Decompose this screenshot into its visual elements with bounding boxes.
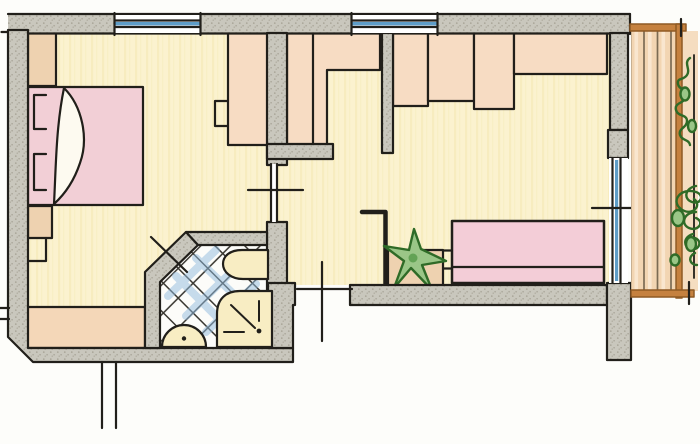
built-in-closet <box>514 33 607 74</box>
window-glass <box>352 22 437 25</box>
leaf-blob <box>672 210 684 226</box>
right-wall-upper <box>610 33 628 130</box>
hall-stub-wall <box>267 144 333 159</box>
corner-wall-block <box>607 283 631 360</box>
corner-wardrobe <box>28 33 56 86</box>
double-bed <box>28 87 143 205</box>
leaf-blob <box>681 88 690 101</box>
door-glass <box>615 160 618 281</box>
railing-bottom-bar <box>631 290 694 297</box>
built-in-closet <box>428 33 474 101</box>
window-2 <box>352 13 438 35</box>
plan-root <box>0 13 700 428</box>
floor-plan-drawing <box>0 0 700 444</box>
built-in-closet <box>474 33 514 109</box>
right-wall-cap <box>608 130 628 158</box>
top-wall-segments <box>8 14 630 34</box>
nightstand <box>28 206 52 238</box>
hall-living-partition <box>382 33 393 153</box>
built-in-closet <box>393 33 428 106</box>
leaf-blob <box>671 255 680 266</box>
sideboard <box>27 307 145 348</box>
window-1 <box>115 13 201 35</box>
wardrobe <box>228 33 268 145</box>
toilet <box>223 250 268 279</box>
sofa <box>452 221 604 283</box>
bottom-wall-right <box>350 285 607 305</box>
window-glass <box>115 22 200 25</box>
wood-decking <box>631 31 677 291</box>
bathroom-top-wall <box>186 232 267 245</box>
plant-center <box>409 254 418 263</box>
leaf-blob <box>688 120 696 132</box>
shower-drain <box>257 329 262 334</box>
wall-segment <box>200 14 352 34</box>
leaf-blob <box>686 237 696 251</box>
bedroom-hall-wall-lower <box>267 222 287 290</box>
wall-segment <box>437 14 630 34</box>
balcony <box>630 19 700 304</box>
floor-plan-page <box>0 0 700 444</box>
washbasin-drain <box>182 336 186 340</box>
door-leaf-fill <box>272 164 277 222</box>
